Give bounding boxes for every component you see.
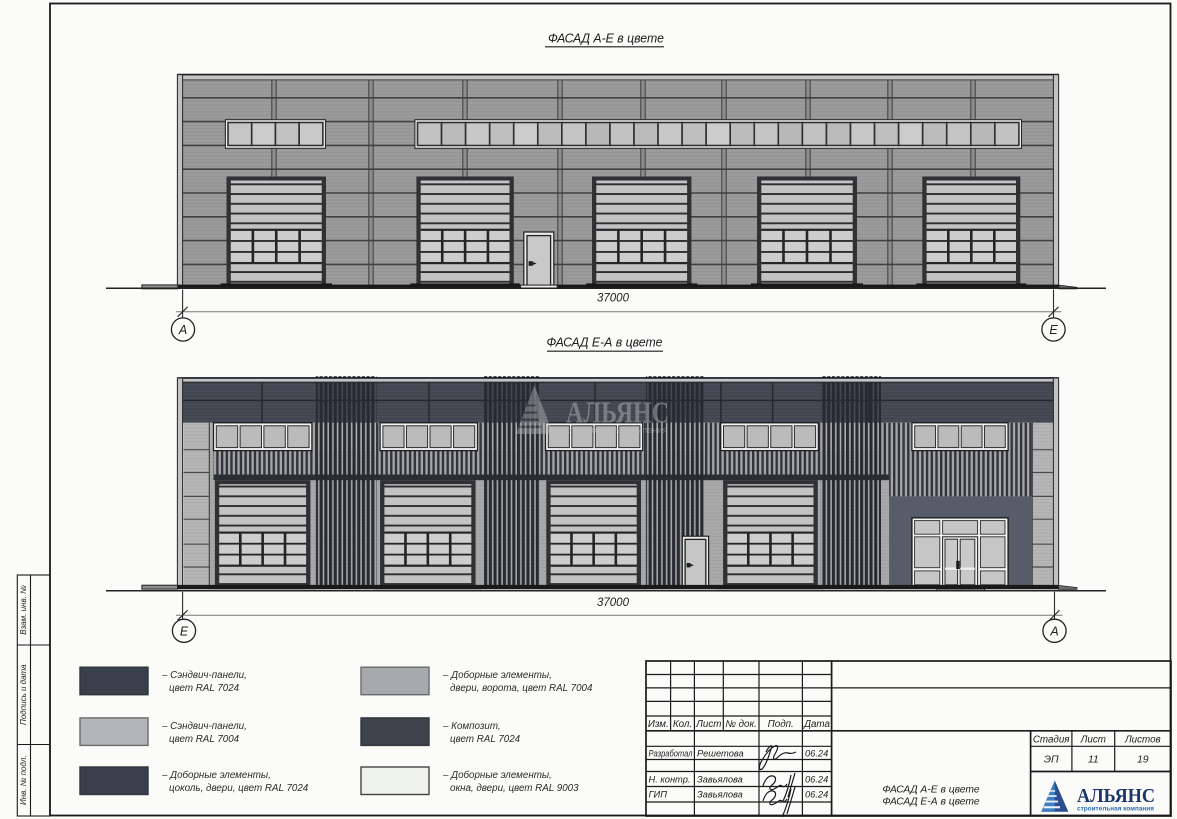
svg-text:строительная компания: строительная компания — [1077, 806, 1154, 813]
svg-text:Е: Е — [180, 624, 189, 638]
svg-text:ГИП: ГИП — [649, 790, 668, 800]
svg-text:Взам. инв. №: Взам. инв. № — [19, 585, 28, 635]
svg-text:окна, двери, цвет RAL 9003: окна, двери, цвет RAL 9003 — [450, 783, 579, 794]
svg-text:Решетова: Решетова — [697, 749, 744, 759]
svg-text:Лист: Лист — [695, 719, 721, 730]
svg-text:Стадия: Стадия — [1033, 734, 1070, 745]
svg-text:ФАСАД Е-А в цвете: ФАСАД Е-А в цвете — [547, 335, 663, 350]
svg-text:06.24: 06.24 — [805, 749, 828, 759]
svg-text:– Композит,: – Композит, — [442, 721, 501, 732]
svg-text:№ док.: № док. — [725, 719, 757, 730]
svg-text:Разработал: Разработал — [649, 749, 694, 759]
svg-text:ФАСАД Е-А в цвете: ФАСАД Е-А в цвете — [882, 797, 980, 808]
svg-text:37000: 37000 — [597, 293, 630, 305]
svg-text:А: А — [1049, 624, 1058, 638]
svg-text:цвет RAL 7004: цвет RAL 7004 — [169, 734, 240, 745]
svg-text:А: А — [178, 323, 187, 337]
svg-text:ФАСАД А-Е в цвете: ФАСАД А-Е в цвете — [882, 785, 980, 796]
svg-text:– Сэндвич-панели,: – Сэндвич-панели, — [161, 670, 247, 681]
svg-text:– Доборные элементы,: – Доборные элементы, — [442, 770, 552, 781]
svg-text:Завьялова: Завьялова — [697, 790, 743, 800]
svg-text:– Сэндвич-панели,: – Сэндвич-панели, — [161, 721, 247, 732]
svg-text:Подп.: Подп. — [768, 719, 794, 730]
svg-text:строительная компания: строительная компания — [567, 425, 668, 435]
svg-text:Изм.: Изм. — [648, 719, 669, 730]
svg-text:Листов: Листов — [1124, 734, 1161, 745]
svg-text:06.24: 06.24 — [805, 775, 828, 785]
svg-text:АЛЬЯНС: АЛЬЯНС — [1077, 785, 1155, 807]
svg-text:цвет RAL 7024: цвет RAL 7024 — [169, 683, 240, 694]
svg-text:Подпись и дата: Подпись и дата — [19, 664, 28, 725]
svg-text:двери, ворота, цвет RAL 7004: двери, ворота, цвет RAL 7004 — [450, 683, 593, 694]
svg-text:11: 11 — [1088, 754, 1099, 766]
svg-text:19: 19 — [1137, 754, 1149, 766]
svg-text:цоколь, двери, цвет RAL 7024: цоколь, двери, цвет RAL 7024 — [169, 783, 309, 794]
svg-text:06.24: 06.24 — [805, 790, 828, 800]
svg-text:Н. контр.: Н. контр. — [649, 775, 691, 785]
svg-text:ФАСАД А-Е в цвете: ФАСАД А-Е в цвете — [548, 31, 664, 46]
svg-text:Завьялова: Завьялова — [697, 775, 743, 785]
svg-text:Кол.: Кол. — [673, 719, 692, 730]
svg-text:ЭП: ЭП — [1044, 754, 1059, 766]
svg-text:цвет RAL 7024: цвет RAL 7024 — [450, 734, 521, 745]
svg-text:– Доборные элементы,: – Доборные элементы, — [161, 770, 271, 781]
svg-text:Е: Е — [1049, 323, 1058, 337]
svg-text:37000: 37000 — [597, 597, 630, 609]
svg-text:– Доборные элементы,: – Доборные элементы, — [442, 670, 552, 681]
svg-text:Лист: Лист — [1080, 734, 1106, 745]
svg-text:Инв. № подл.: Инв. № подл. — [19, 755, 28, 805]
svg-text:Дата: Дата — [803, 719, 830, 730]
